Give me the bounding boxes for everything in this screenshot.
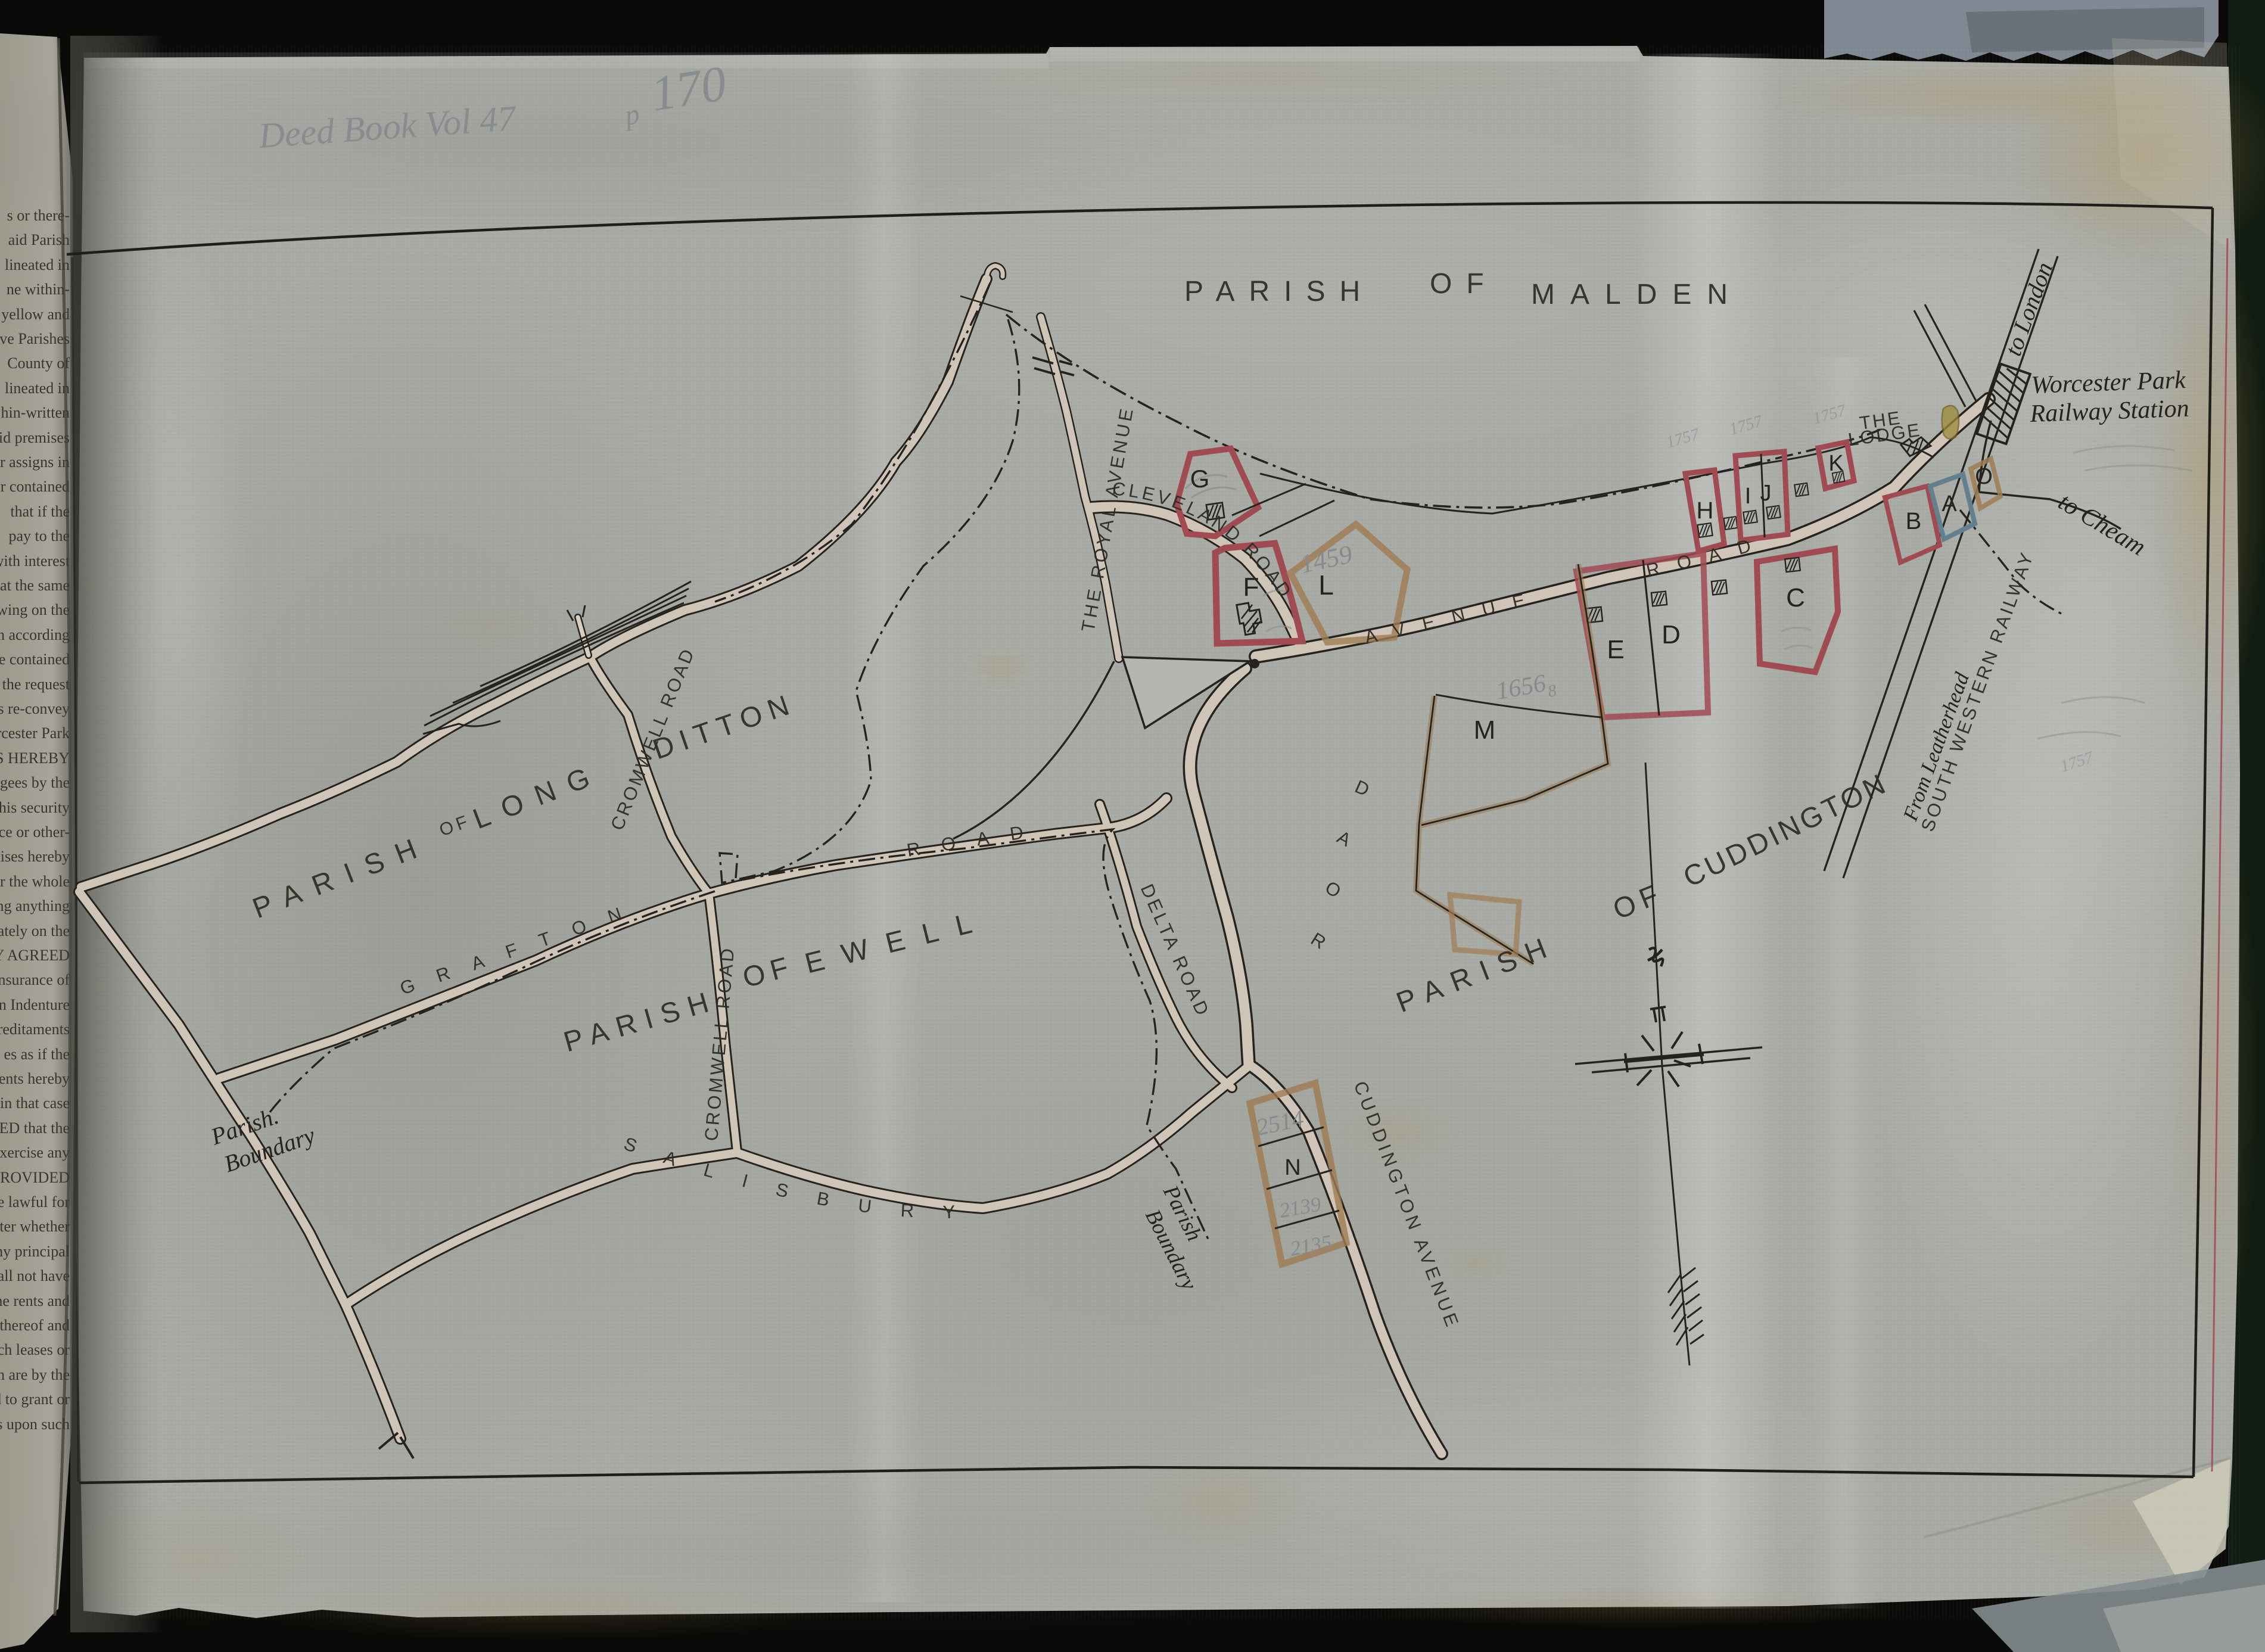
svg-text:F: F	[1243, 573, 1259, 602]
svg-text:J: J	[1760, 481, 1772, 506]
svg-text:OF: OF	[1430, 268, 1498, 300]
svg-text:eafter whether: eafter whether	[0, 1218, 70, 1235]
svg-text:C: C	[1786, 583, 1805, 612]
svg-text:O: O	[1975, 464, 1993, 489]
svg-text:E: E	[1607, 635, 1624, 664]
svg-text:K: K	[1828, 451, 1843, 476]
svg-text:ne within-: ne within-	[7, 281, 70, 298]
svg-text:PARISH: PARISH	[1184, 276, 1374, 307]
svg-text:N: N	[1284, 1155, 1300, 1180]
svg-text:such leases or: such leases or	[0, 1341, 70, 1358]
svg-text:D: D	[1662, 620, 1681, 649]
svg-text:s exercise any: s exercise any	[0, 1144, 70, 1161]
svg-text:f any principal: f any principal	[0, 1243, 70, 1260]
svg-text:ve Parishes: ve Parishes	[0, 330, 70, 347]
svg-text:zed to grant or: zed to grant or	[0, 1390, 70, 1408]
svg-text:M: M	[1474, 715, 1496, 745]
svg-text:H: H	[1697, 497, 1714, 524]
svg-text:PROVIDED: PROVIDED	[0, 1169, 70, 1186]
svg-text:wing on the: wing on the	[0, 601, 70, 618]
svg-text:that if the: that if the	[10, 503, 70, 520]
svg-text:cies upon such: cies upon such	[0, 1415, 70, 1433]
svg-text:hin-written: hin-written	[1, 404, 70, 421]
svg-text:yellow and: yellow and	[1, 306, 70, 323]
svg-text:aid Parish: aid Parish	[8, 231, 70, 248]
svg-text:art thereof and: art thereof and	[0, 1317, 70, 1334]
svg-text:r assigns in: r assigns in	[0, 453, 70, 471]
svg-text:ion are by the: ion are by the	[0, 1366, 70, 1383]
svg-text:County of: County of	[7, 354, 70, 372]
svg-text:r contained: r contained	[1, 478, 70, 495]
svg-text:be lawful for: be lawful for	[0, 1193, 70, 1211]
svg-text:I: I	[1745, 484, 1751, 509]
svg-text:170: 170	[647, 55, 730, 122]
svg-text:pay to the: pay to the	[8, 527, 70, 545]
svg-text:A: A	[1942, 491, 1957, 517]
svg-text:Worcester Park: Worcester Park	[2031, 366, 2187, 399]
svg-text:with interest: with interest	[0, 552, 70, 570]
svg-text:the rents and: the rents and	[0, 1292, 70, 1309]
svg-text:id premises: id premises	[0, 429, 70, 446]
svg-text:Railway Station: Railway Station	[2029, 395, 2190, 428]
svg-text:MALDEN: MALDEN	[1531, 279, 1743, 310]
svg-text:lineated in: lineated in	[5, 256, 70, 273]
svg-text:at the same: at the same	[0, 577, 70, 594]
svg-text:n according: n according	[0, 626, 70, 643]
svg-text:B: B	[1906, 508, 1922, 534]
svg-text:lineated in: lineated in	[5, 379, 70, 397]
svg-text:shall not have: shall not have	[0, 1267, 70, 1284]
svg-text:G: G	[1190, 465, 1210, 493]
